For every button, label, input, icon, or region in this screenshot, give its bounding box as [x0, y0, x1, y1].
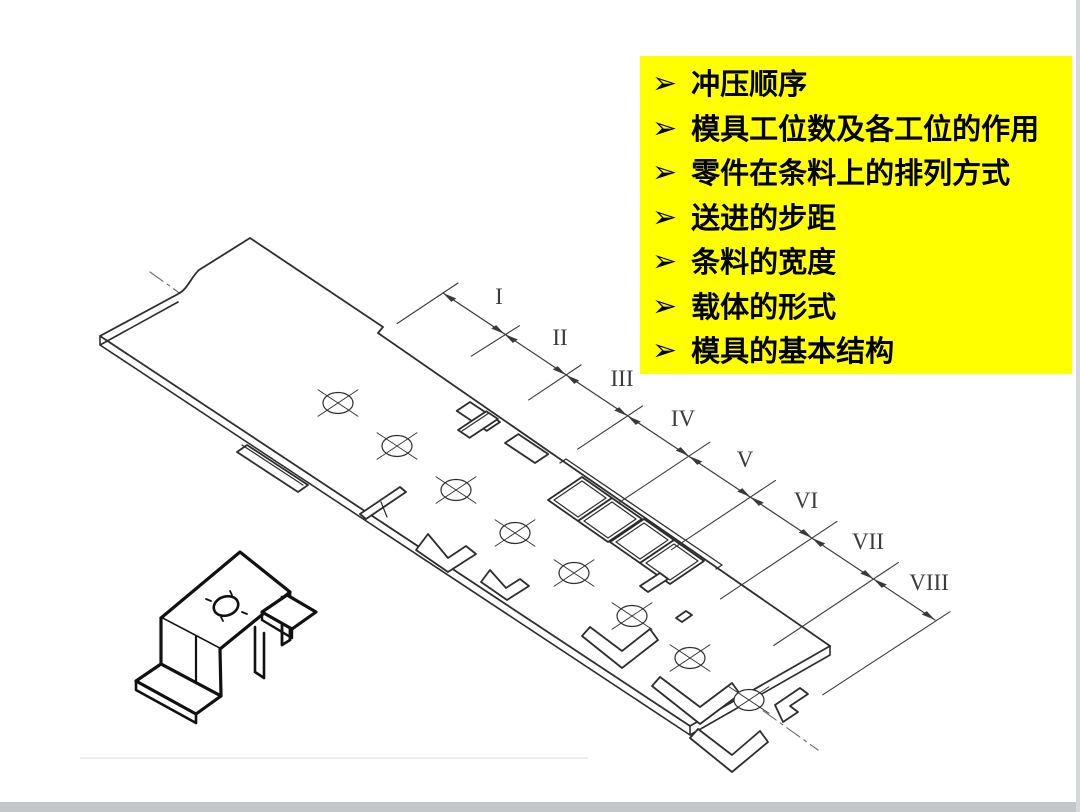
slide-right-border — [1076, 0, 1080, 812]
bullet-item: ➢ 模具的基本结构 — [652, 330, 1068, 375]
station-label-4: IV — [671, 406, 696, 431]
arrow-bullet-icon: ➢ — [652, 240, 677, 284]
bullet-item: ➢ 冲压顺序 — [652, 63, 1068, 108]
station-label-3: III — [611, 366, 634, 391]
bullet-item-label: 零件在条料上的排列方式 — [691, 152, 1010, 196]
slide-bottom-bar — [0, 802, 1080, 812]
station-label-7: VII — [852, 529, 884, 554]
station-label-1: I — [495, 284, 503, 309]
bullet-item-label: 模具的基本结构 — [691, 330, 894, 374]
end-corner-bend — [775, 688, 808, 722]
arrow-bullet-icon: ➢ — [652, 62, 677, 106]
pilot-hole — [729, 687, 769, 714]
bullet-item: ➢ 载体的形式 — [652, 286, 1068, 331]
arrow-bullet-icon: ➢ — [652, 196, 677, 240]
arrow-bullet-icon: ➢ — [652, 285, 677, 329]
bullet-item: ➢ 零件在条料上的排列方式 — [652, 152, 1068, 197]
bullet-item-label: 条料的宽度 — [691, 241, 836, 285]
arrow-bullet-icon: ➢ — [652, 329, 677, 373]
pilot-hole — [377, 433, 417, 460]
faint-divider-line — [80, 757, 588, 759]
station-label-5: V — [737, 447, 754, 472]
station-label-2: II — [552, 325, 567, 350]
station-label-6: VI — [794, 488, 818, 513]
arrow-bullet-icon: ➢ — [652, 107, 677, 151]
pilot-hole — [495, 520, 535, 547]
pilot-hole — [670, 645, 710, 672]
finished-part-drawing — [136, 552, 316, 723]
part-channel-gap — [255, 627, 264, 678]
pilot-hole — [318, 390, 358, 417]
bullet-item-label: 冲压顺序 — [691, 63, 807, 107]
bullet-item: ➢ 送进的步距 — [652, 197, 1068, 242]
bullet-item-label: 模具工位数及各工位的作用 — [691, 108, 1039, 152]
station-label-8: VIII — [909, 570, 949, 595]
pilot-hole — [612, 603, 652, 630]
bullet-item-label: 送进的步距 — [691, 197, 836, 241]
bullet-item: ➢ 条料的宽度 — [652, 241, 1068, 286]
pilot-hole — [554, 560, 594, 587]
arrow-bullet-icon: ➢ — [652, 151, 677, 195]
pilot-hole — [436, 477, 476, 504]
slide: I II III IV V VI VII VIII — [0, 0, 1080, 812]
callout-box: ➢ 冲压顺序 ➢ 模具工位数及各工位的作用 ➢ 零件在条料上的排列方式 ➢ 送进… — [640, 56, 1072, 374]
bullet-item-label: 载体的形式 — [691, 286, 836, 330]
bullet-item: ➢ 模具工位数及各工位的作用 — [652, 108, 1068, 153]
formed-u-bend-3 — [690, 729, 768, 772]
bullet-list: ➢ 冲压顺序 ➢ 模具工位数及各工位的作用 ➢ 零件在条料上的排列方式 ➢ 送进… — [652, 63, 1068, 375]
